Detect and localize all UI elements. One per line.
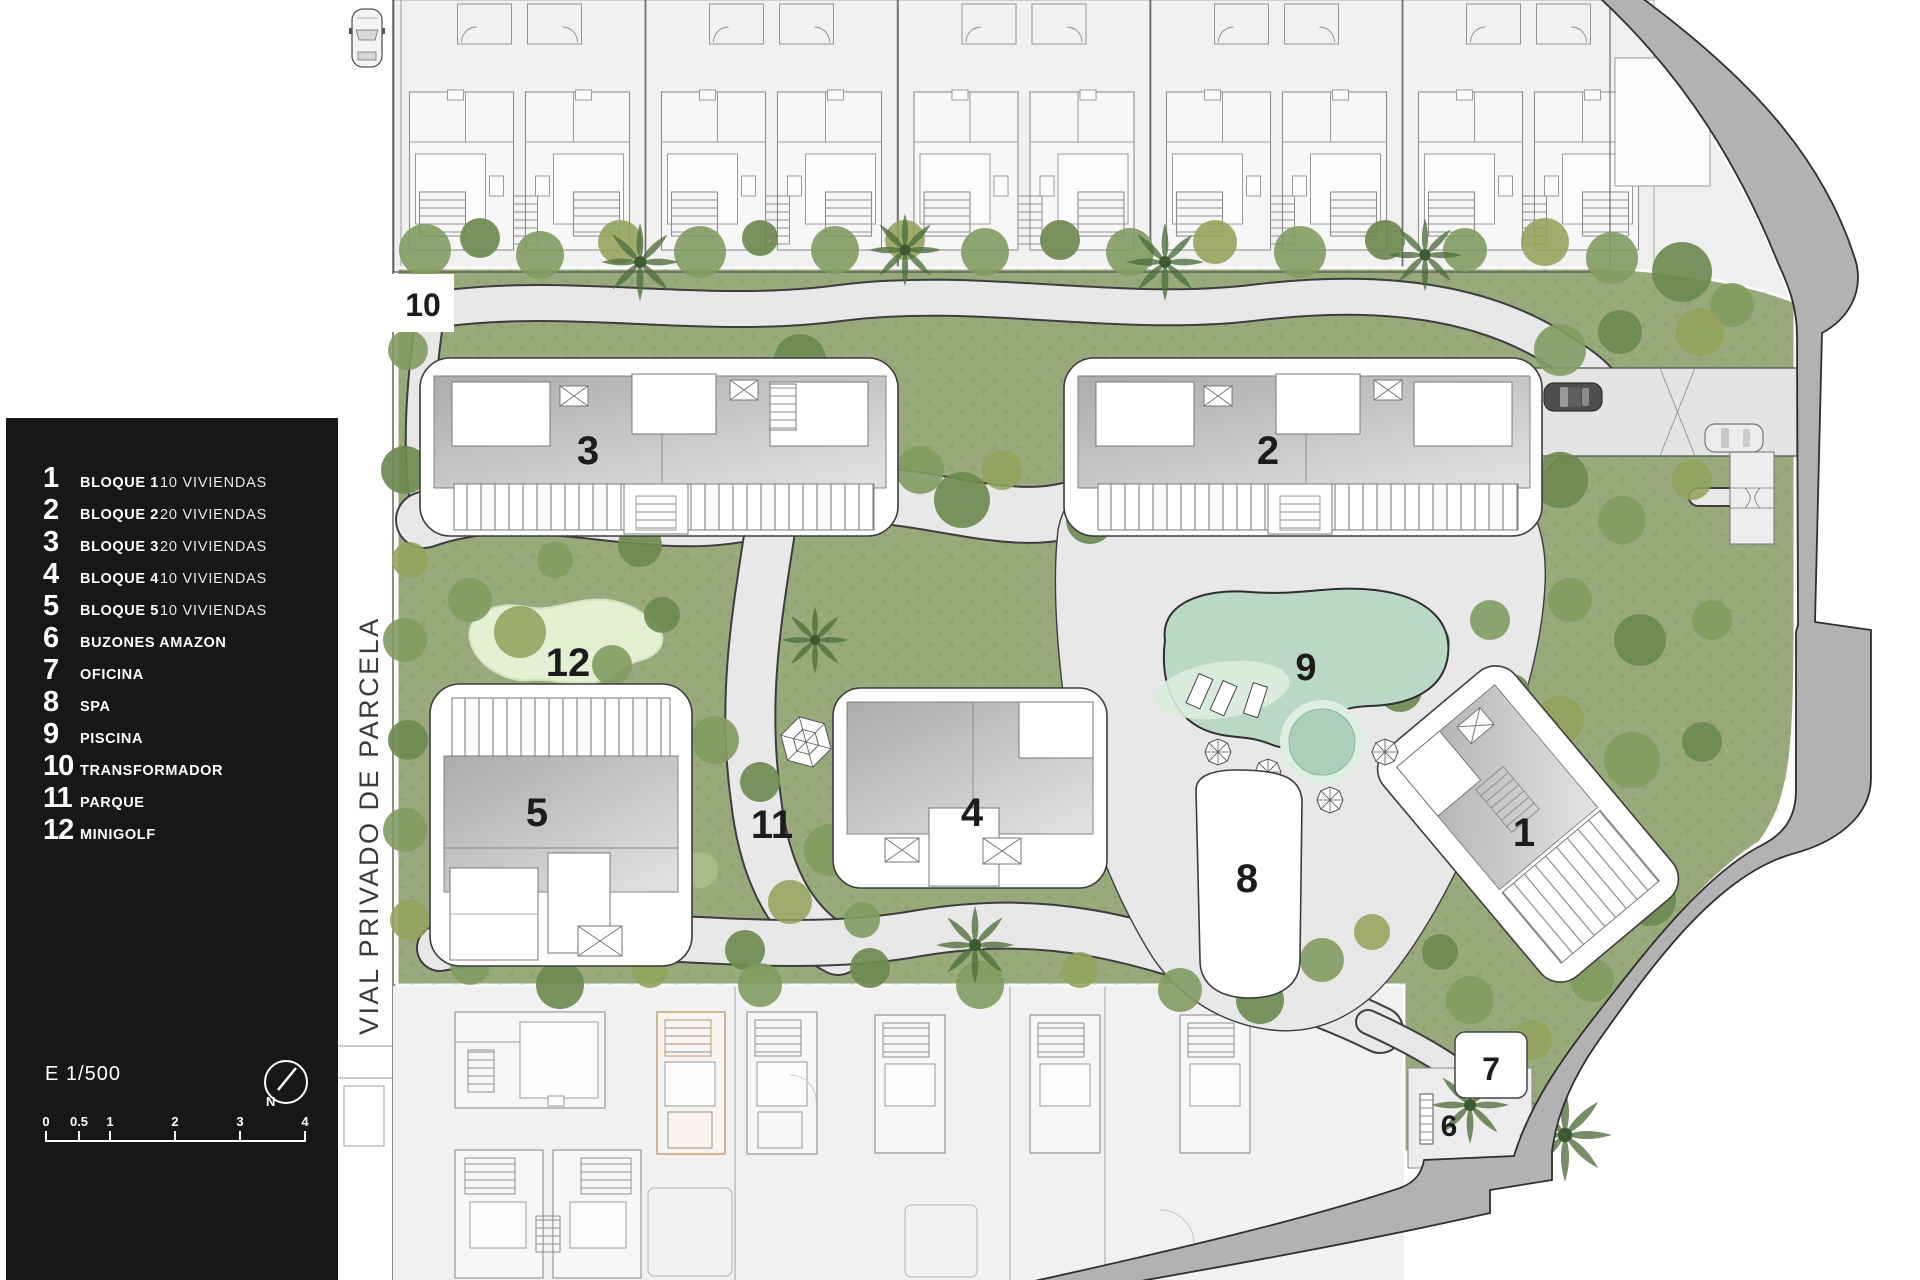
scale-bar-label: 2 bbox=[171, 1114, 178, 1129]
legend-item: 5BLOQUE 510 VIVIENDAS bbox=[6, 590, 338, 622]
scale-bar-tick bbox=[45, 1131, 47, 1141]
legend-item: 9PISCINA bbox=[6, 718, 338, 750]
scale-bar: 0 0.5 1 2 3 4 bbox=[6, 1118, 338, 1164]
stair-access bbox=[770, 384, 796, 430]
legend-detail: 10 VIVIENDAS bbox=[160, 571, 267, 587]
legend-number: 4 bbox=[43, 558, 80, 590]
scale-bar-tick bbox=[78, 1131, 80, 1141]
legend-number: 12 bbox=[43, 814, 80, 846]
scale-bar-label: 4 bbox=[301, 1114, 308, 1129]
legend-item: 8SPA bbox=[6, 686, 338, 718]
car-icon bbox=[1705, 424, 1763, 452]
legend-label: BLOQUE 2 bbox=[80, 507, 152, 523]
marker-block-5: 5 bbox=[526, 791, 548, 835]
north-compass: N bbox=[254, 1056, 318, 1120]
legend-label: MINIGOLF bbox=[80, 827, 152, 843]
road-name: VIAL PRIVADO DE PARCELA bbox=[354, 616, 384, 1035]
marker-spa: 8 bbox=[1236, 857, 1258, 901]
marker-minigolf: 12 bbox=[546, 641, 591, 685]
legend-item: 10TRANSFORMADOR bbox=[6, 750, 338, 782]
amazon-mailboxes bbox=[1420, 1094, 1433, 1144]
legend-label: TRANSFORMADOR bbox=[80, 763, 152, 779]
car-icon bbox=[349, 9, 385, 67]
marker-buzones: 6 bbox=[1441, 1110, 1458, 1143]
marker-transformador: 10 bbox=[405, 287, 441, 323]
legend-label: BLOQUE 1 bbox=[80, 475, 152, 491]
legend-item: 1BLOQUE 110 VIVIENDAS bbox=[6, 462, 338, 494]
legend-item: 2BLOQUE 220 VIVIENDAS bbox=[6, 494, 338, 526]
legend-label: PARQUE bbox=[80, 795, 152, 811]
scale-bar-label: 0.5 bbox=[70, 1114, 88, 1129]
marker-piscina: 9 bbox=[1295, 647, 1316, 689]
legend-item: 11PARQUE bbox=[6, 782, 338, 814]
legend-number: 1 bbox=[43, 462, 80, 494]
marker-block-2: 2 bbox=[1257, 429, 1279, 473]
legend-item: 12MINIGOLF bbox=[6, 814, 338, 846]
legend-number: 11 bbox=[43, 782, 80, 814]
legend-label: PISCINA bbox=[80, 731, 152, 747]
marker-block-4: 4 bbox=[961, 791, 984, 835]
legend-number: 7 bbox=[43, 654, 80, 686]
legend-number: 9 bbox=[43, 718, 80, 750]
legend-label: BLOQUE 5 bbox=[80, 603, 152, 619]
legend-number: 5 bbox=[43, 590, 80, 622]
legend-label: BUZONES AMAZON bbox=[80, 635, 152, 651]
scale-text: E 1/500 bbox=[45, 1063, 121, 1086]
legend-list: 1BLOQUE 110 VIVIENDAS 2BLOQUE 220 VIVIEN… bbox=[6, 462, 338, 846]
parasol-icon bbox=[1317, 787, 1343, 813]
legend-number: 6 bbox=[43, 622, 80, 654]
legend-item: 7OFICINA bbox=[6, 654, 338, 686]
legend-panel: 1BLOQUE 110 VIVIENDAS 2BLOQUE 220 VIVIEN… bbox=[6, 418, 338, 1280]
legend-item: 3BLOQUE 320 VIVIENDAS bbox=[6, 526, 338, 558]
legend-number: 10 bbox=[43, 750, 80, 782]
building-block-2 bbox=[1064, 358, 1542, 536]
legend-label: OFICINA bbox=[80, 667, 152, 683]
legend-label: BLOQUE 3 bbox=[80, 539, 152, 555]
scale-bar-label: 3 bbox=[236, 1114, 243, 1129]
north-label: N bbox=[266, 1094, 275, 1109]
scale-bar-tick bbox=[304, 1131, 306, 1141]
legend-number: 3 bbox=[43, 526, 80, 558]
scale-bar-tick bbox=[109, 1131, 111, 1141]
legend-item: 6BUZONES AMAZON bbox=[6, 622, 338, 654]
scale-bar-label: 1 bbox=[106, 1114, 113, 1129]
building-block-5 bbox=[430, 684, 692, 966]
marker-oficina: 7 bbox=[1482, 1051, 1500, 1087]
legend-label: SPA bbox=[80, 699, 152, 715]
building-block-4 bbox=[833, 688, 1107, 888]
legend-label: BLOQUE 4 bbox=[80, 571, 152, 587]
legend-detail: 10 VIVIENDAS bbox=[160, 603, 267, 619]
car-icon bbox=[1544, 383, 1602, 411]
site-plan-page: VIAL PRIVADO DE PARCELA 3 2 5 4 1 9 8 12… bbox=[0, 0, 1920, 1280]
scale-bar-label: 0 bbox=[42, 1114, 49, 1129]
legend-detail: 10 VIVIENDAS bbox=[160, 475, 267, 491]
marker-block-3: 3 bbox=[577, 429, 599, 473]
legend-detail: 20 VIVIENDAS bbox=[160, 507, 267, 523]
legend-number: 8 bbox=[43, 686, 80, 718]
marker-parque: 11 bbox=[751, 803, 793, 847]
building-block-3 bbox=[420, 358, 898, 536]
legend-item: 4BLOQUE 410 VIVIENDAS bbox=[6, 558, 338, 590]
scale-bar-tick bbox=[239, 1131, 241, 1141]
marker-block-1: 1 bbox=[1513, 811, 1535, 855]
legend-detail: 20 VIVIENDAS bbox=[160, 539, 267, 555]
parasol-icon bbox=[1372, 739, 1398, 765]
scale-bar-tick bbox=[174, 1131, 176, 1141]
parasol-icon bbox=[1205, 739, 1231, 765]
legend-number: 2 bbox=[43, 494, 80, 526]
